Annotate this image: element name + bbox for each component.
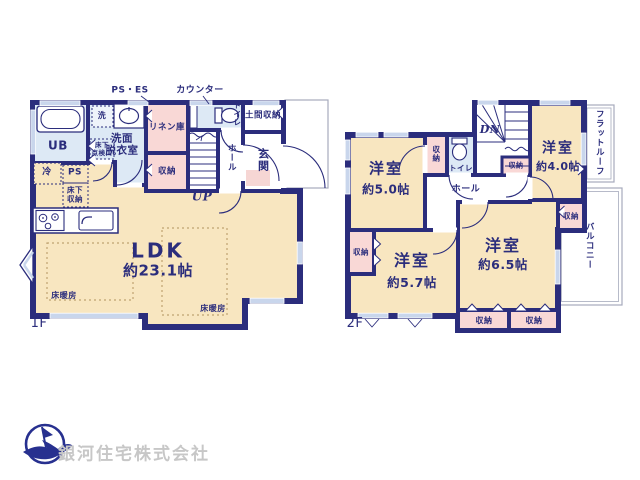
label-underfloor-storage: 床下収納 — [67, 186, 83, 205]
label-dn: DN — [480, 123, 501, 137]
label-storage-under-stairs: 収納 — [509, 162, 524, 171]
label-room57-size: 約5.7帖 — [387, 275, 437, 291]
label-ldk: LDK — [131, 239, 185, 264]
label-fridge: 冷 — [42, 167, 52, 178]
floorplan-drawing — [0, 0, 640, 480]
label-ldk-size: 約23.1帖 — [123, 262, 193, 281]
label-room65-size: 約6.5帖 — [478, 257, 528, 273]
label-storage-right: 収納 — [563, 211, 579, 220]
label-storage-bottom-2: 収納 — [526, 316, 543, 326]
vanity-sink-icon — [114, 104, 144, 128]
label-room40-size: 約4.0帖 — [536, 160, 580, 174]
toilet-counter — [190, 105, 197, 128]
label-flat-roof: フラットルーフ — [595, 110, 604, 177]
label-genkan: 玄関 — [258, 148, 269, 172]
label-room57-name: 洋室 — [394, 251, 430, 271]
label-toilet-2f: トイレ — [449, 163, 473, 172]
stairs-1f — [188, 130, 218, 191]
bathtub-icon — [37, 106, 84, 132]
label-storage-1f: 収納 — [158, 167, 176, 178]
label-ub: UB — [48, 139, 68, 154]
label-storage-left: 収納 — [353, 247, 369, 256]
label-floor-1f: 1F — [31, 316, 48, 332]
label-floor-heating-2: 床暖房 — [200, 304, 226, 314]
label-hall-2f: ホール — [452, 184, 481, 195]
genkan-step — [246, 170, 270, 186]
bay-window-1f — [20, 246, 33, 284]
label-toilet-1f: トイレ — [233, 101, 241, 127]
toilet-icon-2f — [452, 138, 467, 160]
label-linen: リネン庫 — [149, 123, 185, 134]
porch-outline — [285, 100, 328, 188]
label-room40-name: 洋室 — [542, 140, 574, 158]
label-storage-bottom-1: 収納 — [476, 316, 493, 326]
label-floor-2f: 2F — [347, 316, 364, 332]
floorplan-canvas: PS・ES カウンター UB 洗 床下点検口 洗面 脱衣室 リネン庫 収納 トイ… — [0, 0, 640, 480]
label-washroom-2: 脱衣室 — [106, 144, 139, 157]
label-doma-storage: 土間収納 — [245, 111, 281, 122]
label-storage-50: 収納 — [432, 146, 440, 163]
door-swing-marks-2f — [365, 319, 422, 327]
label-room50-size: 約5.0帖 — [362, 183, 410, 198]
label-hall-1f: ホール — [227, 144, 236, 173]
kitchen-counter — [33, 208, 118, 233]
label-room65-name: 洋室 — [485, 236, 521, 256]
label-counter: カウンター — [176, 85, 224, 96]
company-name: 銀河住宅株式会社 — [58, 440, 210, 465]
label-floor-heating-1: 床暖房 — [51, 291, 77, 301]
label-room50-name: 洋室 — [369, 160, 403, 179]
label-up: UP — [192, 190, 213, 205]
label-washer: 洗 — [98, 111, 107, 121]
label-ps-es: PS・ES — [111, 85, 148, 96]
label-ps: PS — [68, 167, 82, 178]
label-balcony: バルコニー — [585, 222, 594, 270]
